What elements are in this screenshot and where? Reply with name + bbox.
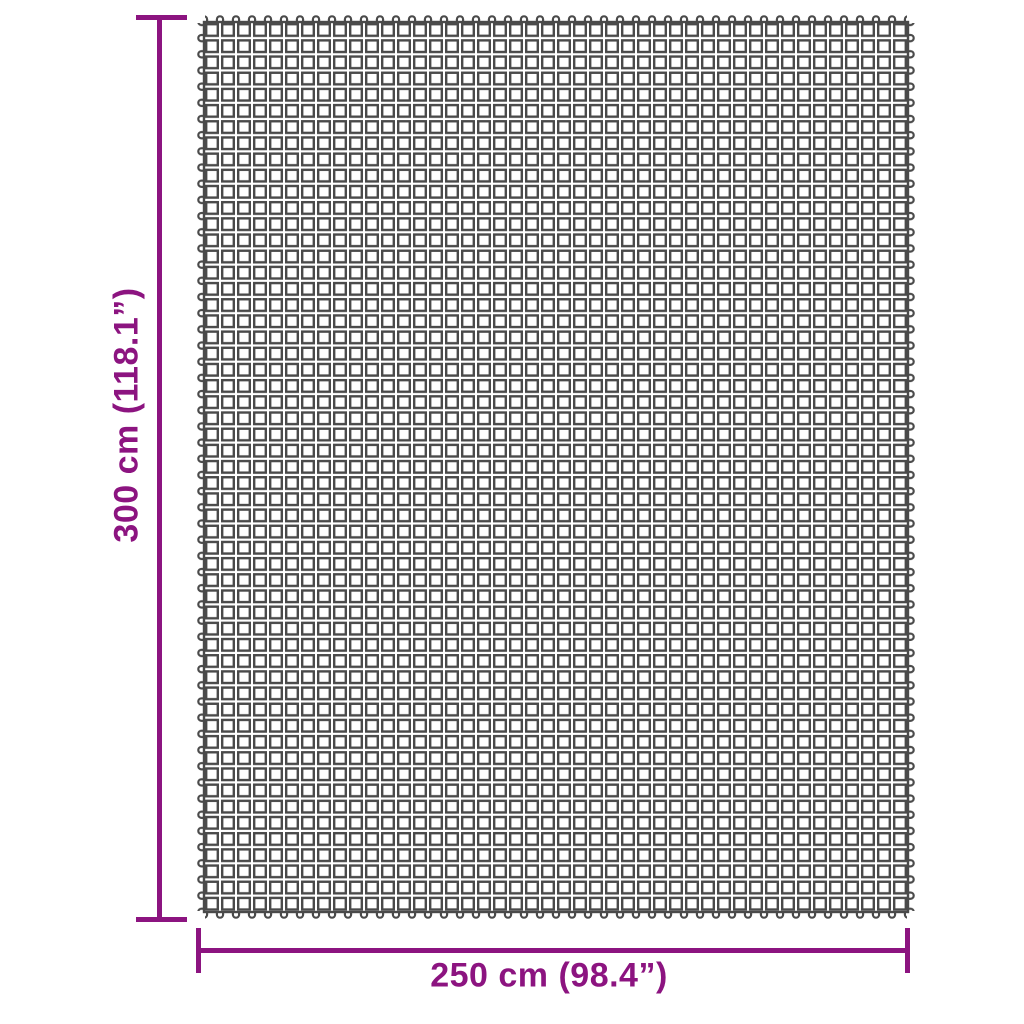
- vertical-dimension-cap-top: [136, 15, 187, 20]
- vertical-dimension-line: [157, 15, 162, 922]
- horizontal-dimension-cap-left: [196, 928, 201, 973]
- vertical-dimension-label: 300 cm (118.1”): [108, 287, 147, 542]
- mat-grid-graphic: [197, 15, 915, 919]
- horizontal-dimension-label: 250 cm (98.4”): [430, 957, 668, 996]
- vertical-dimension-cap-bottom: [136, 917, 187, 922]
- mat-cells: [205, 23, 907, 911]
- horizontal-dimension-line: [196, 948, 910, 953]
- dimension-diagram: 300 cm (118.1”) 250 cm (98.4”): [0, 0, 1024, 1024]
- horizontal-dimension-cap-right: [905, 928, 910, 973]
